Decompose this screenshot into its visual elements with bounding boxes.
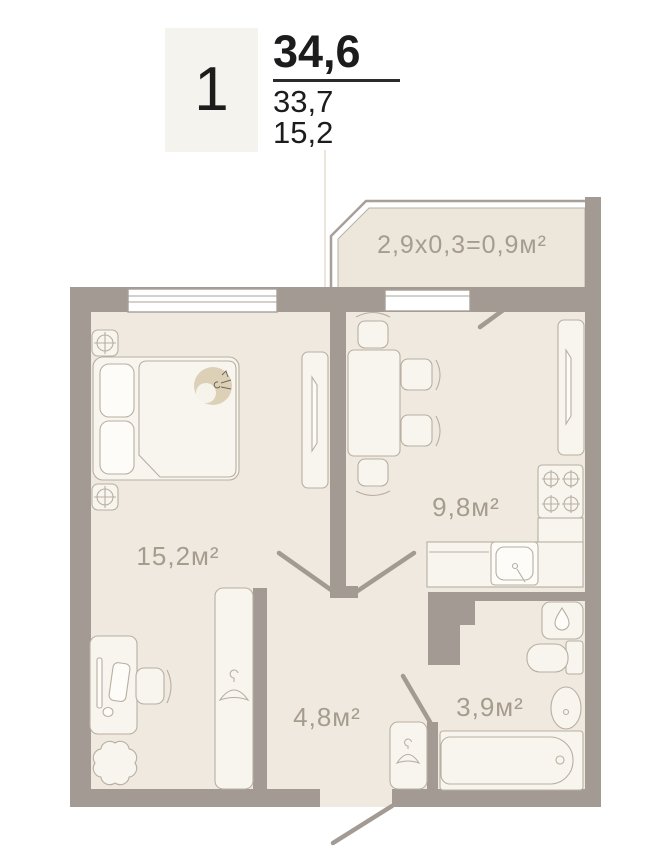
room-label-living: 15,2м²	[136, 541, 219, 571]
bedroom-window	[128, 289, 277, 312]
wall-kitchen-bath	[428, 592, 585, 601]
water-heater	[542, 602, 583, 639]
tv-unit	[302, 352, 328, 488]
sleeping-cat	[194, 367, 232, 405]
entrance-door-swing	[333, 806, 392, 843]
desk	[90, 636, 137, 734]
floorplan-page: 1 34,6 33,7 15,2	[0, 0, 655, 860]
kitchen-window	[385, 290, 470, 311]
tv-screen	[312, 377, 317, 451]
nightstand-top	[92, 330, 118, 356]
stove	[538, 465, 583, 518]
bathtub	[440, 731, 583, 790]
wall-right	[585, 197, 601, 807]
kitchen-sink	[491, 542, 538, 585]
dining-table	[348, 350, 400, 456]
fridge-cabinet	[558, 320, 584, 455]
pillow	[100, 421, 134, 474]
hall-closet	[390, 722, 427, 789]
wardrobe	[215, 588, 253, 789]
floorplan-drawing: 2,9х0,3=0,9м² 15,2м² 9,8м² 4,8м² 3,9м²	[0, 0, 655, 860]
leader-line	[324, 150, 326, 288]
room-label-bathroom: 3,9м²	[456, 692, 524, 722]
entrance-opening	[320, 789, 392, 807]
toilet	[527, 641, 583, 674]
wall-living-kitchen	[330, 287, 346, 588]
room-label-balcony: 2,9х0,3=0,9м²	[377, 231, 547, 259]
wash-basin	[551, 687, 581, 729]
bed	[93, 357, 239, 480]
wall-living-hall	[253, 588, 267, 789]
pillow	[100, 364, 134, 417]
nightstand-bottom	[92, 484, 118, 510]
toilet-bowl	[527, 644, 568, 672]
mouse	[103, 708, 113, 717]
cabinet-door-panel	[566, 350, 571, 424]
room-label-hallway: 4,8м²	[293, 702, 361, 732]
wall-bath-left	[427, 722, 438, 789]
wall-left	[70, 288, 91, 807]
room-label-kitchen: 9,8м²	[432, 492, 500, 522]
monitor	[97, 658, 102, 708]
